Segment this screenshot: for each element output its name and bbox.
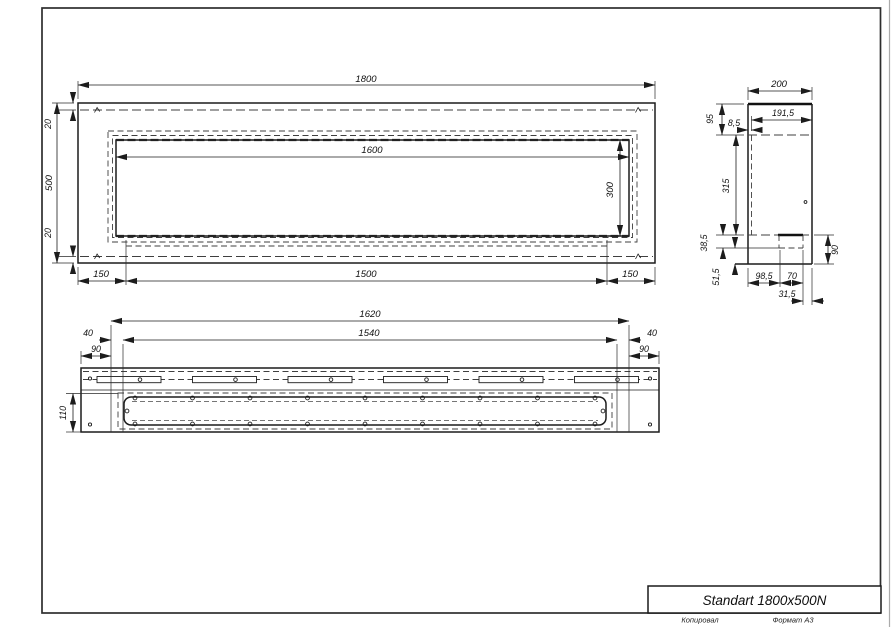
vent-slot (288, 377, 352, 383)
front-view: 1800 500 20 20 1600 300 150 1500 150 (43, 74, 655, 285)
dim-top-section: 95 (705, 114, 715, 124)
screw-hole-icon (88, 377, 91, 380)
screw-hole-icon (648, 377, 651, 380)
dim-bottom-c: 31,5 (778, 289, 795, 299)
dim-step-lower: 51,5 (711, 268, 721, 285)
dim-front-width: 1800 (355, 74, 377, 85)
sheet-frame (42, 0, 890, 627)
dim-inset-right: 90 (639, 344, 649, 354)
screw-hole-icon (648, 423, 651, 426)
weld-mark-icon (804, 201, 807, 204)
dim-view-depth: 110 (58, 406, 68, 420)
title-block: Standart 1800x500N (648, 586, 881, 613)
sheet-footer: Копировал Формат A3 (681, 616, 814, 625)
dim-front-top-offset: 20 (43, 119, 53, 130)
dim-front-bottom-offset: 20 (43, 228, 53, 239)
dim-bottom-a: 98,5 (755, 271, 772, 281)
dim-offset-left: 40 (83, 328, 93, 338)
dim-inner-depth: 191,5 (772, 108, 794, 118)
footer-copied-label: Копировал (681, 616, 719, 625)
dim-left-margin: 150 (93, 269, 110, 280)
screw-mark-icon (636, 108, 641, 113)
dim-opening-width: 1600 (361, 145, 383, 156)
drawing-sheet: 1800 500 20 20 1600 300 150 1500 150 (0, 0, 892, 627)
dim-offset-right: 40 (647, 328, 657, 338)
screw-mark-icon (636, 254, 641, 259)
top-view: 1620 1540 40 40 90 90 110 (58, 309, 659, 432)
dim-right-margin: 150 (622, 269, 639, 280)
vent-slot (97, 377, 161, 383)
drawing-title: Standart 1800x500N (703, 593, 827, 608)
screw-hole-icon (88, 423, 91, 426)
footer-format-label: Формат A3 (772, 616, 814, 625)
drawing-canvas: 1800 500 20 20 1600 300 150 1500 150 (0, 0, 892, 627)
dim-front-gap: 8,5 (728, 118, 740, 128)
dim-span: 1620 (359, 309, 381, 320)
dim-body-height: 315 (721, 179, 731, 194)
vent-slot (193, 377, 257, 383)
dim-inset-left: 90 (91, 344, 101, 354)
dim-bottom-height: 90 (830, 245, 840, 255)
dim-depth: 200 (770, 79, 788, 90)
side-view: 200 191,5 95 8,5 315 38,5 51,5 90 (699, 79, 840, 305)
dim-opening-height: 300 (605, 181, 616, 198)
vent-slot (384, 377, 448, 383)
dim-center-span: 1500 (355, 269, 377, 280)
dim-step-upper: 38,5 (699, 234, 709, 251)
dim-bottom-b: 70 (787, 271, 797, 281)
dim-inner-span: 1540 (358, 328, 380, 339)
vent-slot (479, 377, 543, 383)
dim-front-height: 500 (44, 174, 55, 191)
